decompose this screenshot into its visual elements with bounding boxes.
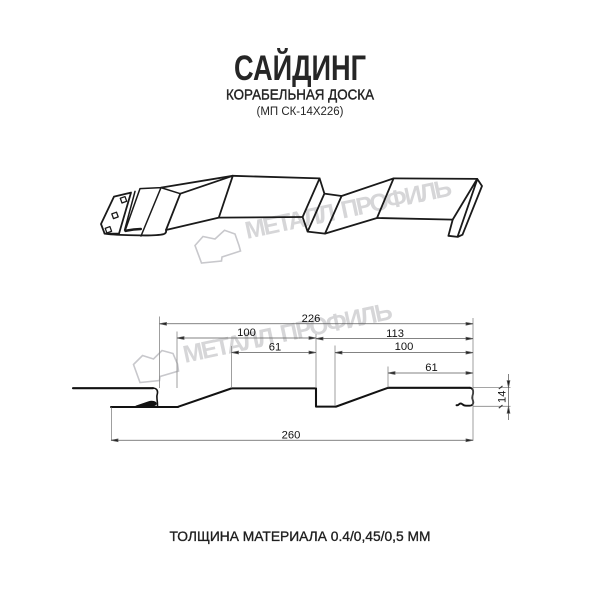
svg-text:ТОЛЩИНА МАТЕРИАЛА 0.4/0,45/0,5: ТОЛЩИНА МАТЕРИАЛА 0.4/0,45/0,5 ММ [170, 529, 431, 545]
svg-text:100: 100 [395, 341, 414, 353]
svg-text:МЕТАЛЛ ПРОФИЛЬ: МЕТАЛЛ ПРОФИЛЬ [181, 298, 395, 369]
svg-text:14: 14 [497, 391, 509, 403]
svg-text:260: 260 [282, 429, 301, 441]
svg-text:100: 100 [237, 327, 256, 339]
svg-text:113: 113 [386, 328, 404, 340]
svg-text:КОРАБЕЛЬНАЯ ДОСКА: КОРАБЕЛЬНАЯ ДОСКА [226, 88, 374, 104]
svg-text:МЕТАЛЛ ПРОФИЛЬ: МЕТАЛЛ ПРОФИЛЬ [243, 175, 454, 245]
svg-text:61: 61 [269, 342, 281, 354]
svg-text:226: 226 [302, 313, 321, 325]
svg-text:САЙДИНГ: САЙДИНГ [234, 48, 366, 88]
svg-text:61: 61 [425, 362, 437, 374]
svg-text:(МП СК-14Х226): (МП СК-14Х226) [257, 106, 344, 118]
